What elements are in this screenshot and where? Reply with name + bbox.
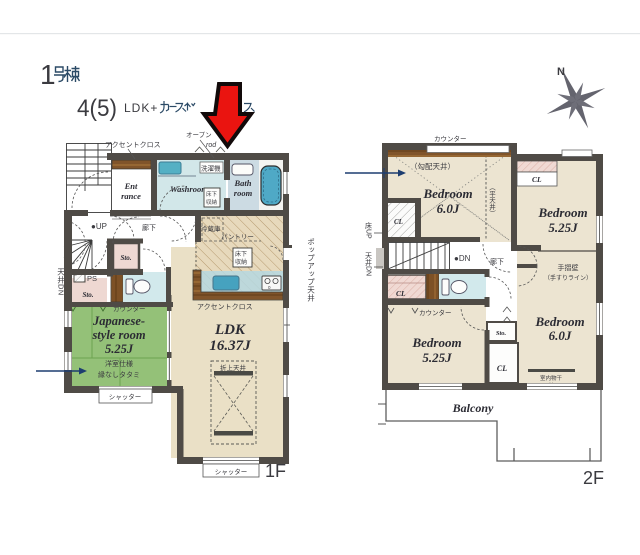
svg-text:rance: rance	[121, 191, 141, 201]
svg-text:CL: CL	[532, 175, 542, 184]
svg-text:room: room	[234, 188, 253, 198]
svg-text:カウンター: カウンター	[419, 308, 452, 317]
svg-text:16.37J: 16.37J	[209, 338, 251, 354]
svg-text:カウンター: カウンター	[434, 134, 467, 143]
svg-text:Bedroom: Bedroom	[411, 335, 461, 350]
svg-text:5.25J: 5.25J	[548, 220, 578, 235]
svg-text:style room: style room	[91, 328, 145, 342]
svg-text:廊下: 廊下	[142, 223, 156, 232]
svg-text:4(5): 4(5)	[77, 95, 117, 122]
svg-text:ポップアップ天井: ポップアップ天井	[306, 238, 315, 303]
svg-text:rod: rod	[206, 142, 217, 149]
svg-text:収納: 収納	[235, 258, 247, 266]
svg-text:Sto.: Sto.	[120, 254, 131, 262]
svg-text:折上天井: 折上天井	[220, 363, 247, 372]
svg-text:Sto.: Sto.	[496, 330, 507, 337]
svg-text:アクセントクロス: アクセントクロス	[105, 141, 161, 149]
svg-text:床下: 床下	[206, 190, 218, 198]
svg-text:5.25J: 5.25J	[422, 350, 452, 365]
svg-text:パントリー: パントリー	[221, 233, 254, 241]
svg-text:天井DN: 天井DN	[56, 268, 65, 296]
svg-text:Washroom: Washroom	[170, 184, 208, 194]
svg-text:オープン: オープン	[186, 131, 212, 139]
svg-text:収納: 収納	[206, 198, 218, 206]
svg-text:●DN: ●DN	[454, 254, 471, 263]
svg-text:冷蔵庫: 冷蔵庫	[201, 224, 221, 233]
svg-text:5.25J: 5.25J	[105, 342, 134, 356]
svg-text:アクセントクロス: アクセントクロス	[197, 303, 253, 311]
svg-text:LDK: LDK	[214, 322, 246, 338]
svg-text:天井DN: 天井DN	[365, 252, 373, 276]
svg-text:N: N	[557, 66, 565, 78]
svg-text:6.0J: 6.0J	[437, 201, 460, 216]
svg-text:（手すりライン）: （手すりライン）	[544, 274, 592, 282]
svg-text:手摺壁: 手摺壁	[558, 263, 579, 272]
svg-text:1: 1	[40, 59, 56, 90]
svg-text:（勾配天井）: （勾配天井）	[410, 161, 455, 171]
svg-text:室内物干: 室内物干	[540, 374, 563, 382]
svg-text:縁なしタタミ: 縁なしタタミ	[98, 370, 140, 379]
svg-text:Sto.: Sto.	[82, 291, 93, 299]
svg-text:PS: PS	[87, 274, 97, 283]
svg-text:Japanese-: Japanese-	[92, 314, 145, 328]
svg-text:シャッター: シャッター	[215, 467, 248, 476]
svg-text:Bedroom: Bedroom	[422, 186, 472, 201]
svg-text:床下: 床下	[235, 250, 247, 258]
svg-text:2F: 2F	[583, 468, 604, 488]
svg-text:洗濯機: 洗濯機	[201, 164, 221, 173]
svg-text:1F: 1F	[265, 461, 286, 481]
svg-text:Bath: Bath	[233, 178, 251, 188]
svg-text:CL: CL	[394, 218, 403, 226]
svg-text:LDK+: LDK+	[124, 101, 158, 115]
svg-text:シャッター: シャッター	[109, 392, 142, 401]
svg-text:CL: CL	[497, 364, 507, 373]
svg-text:CL: CL	[396, 289, 406, 298]
svg-text:Ent: Ent	[124, 181, 138, 191]
svg-text:6.0J: 6.0J	[549, 328, 572, 343]
svg-text:床UP: 床UP	[365, 221, 373, 239]
svg-text:Bedroom: Bedroom	[534, 314, 584, 329]
svg-text:Bedroom: Bedroom	[537, 205, 587, 220]
svg-text:Balcony: Balcony	[452, 401, 494, 415]
svg-text:洋室仕様: 洋室仕様	[105, 359, 133, 368]
svg-text:●UP: ●UP	[91, 222, 107, 231]
